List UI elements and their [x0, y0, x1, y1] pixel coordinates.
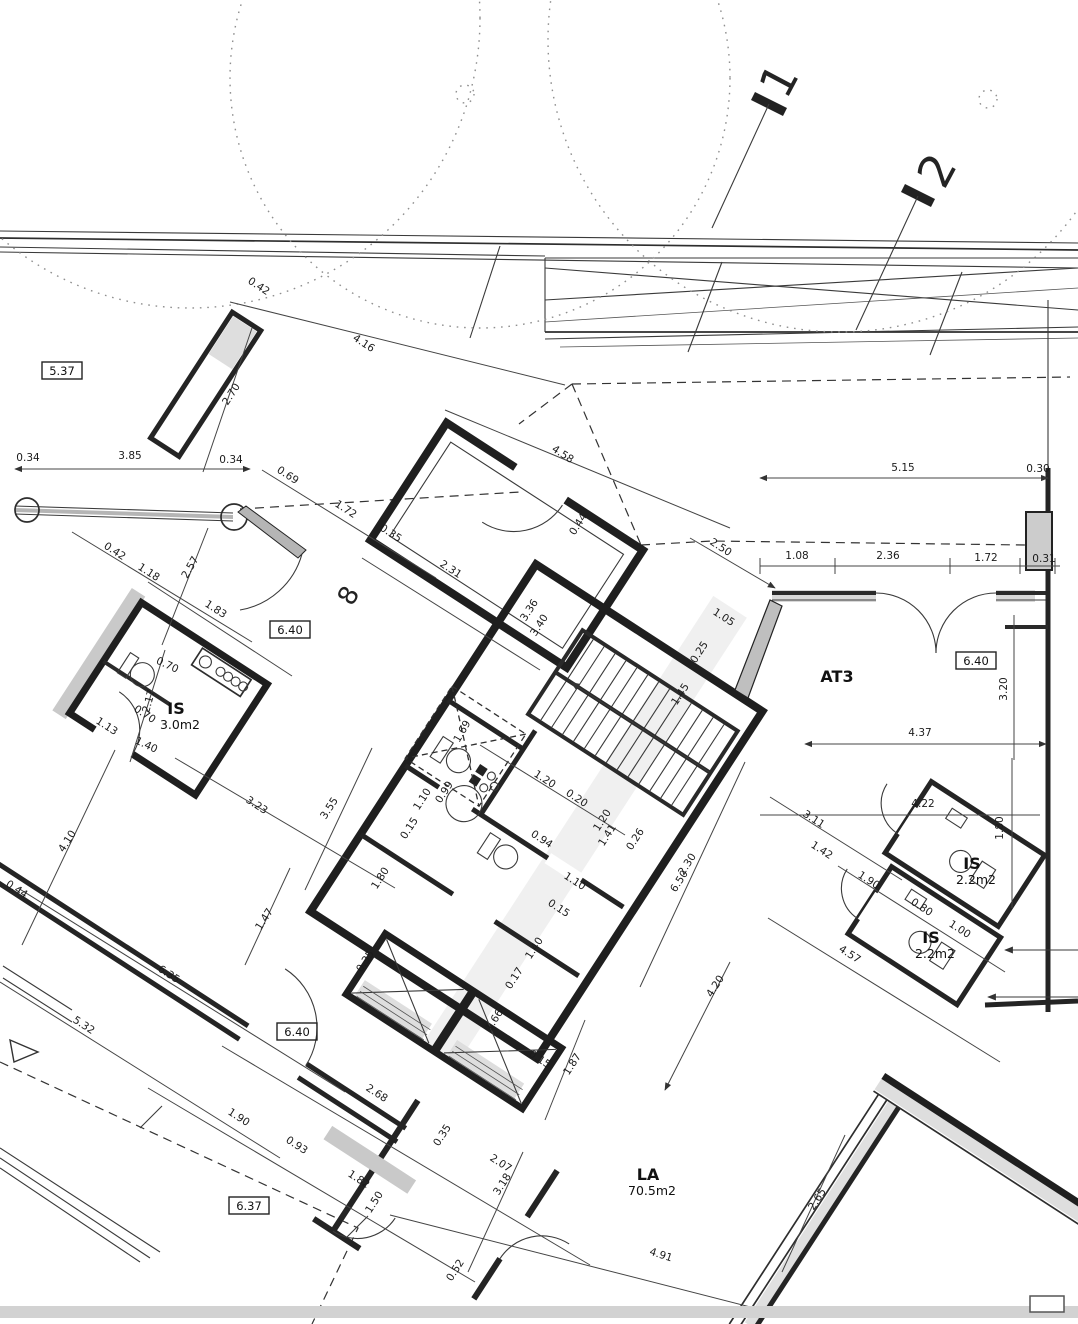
dimension-label: 1.90: [226, 1106, 252, 1129]
dimension-label: 0.42: [102, 540, 128, 563]
dimension-label: 1.50: [363, 1189, 386, 1215]
elevation-label: 5.37: [49, 364, 75, 378]
dimension-label: 4.16: [351, 332, 377, 355]
la-boundary-band: [724, 1076, 1078, 1324]
dimension-label: 2.36: [876, 550, 900, 562]
site-marks: [0, 966, 160, 1262]
fence-railing: [15, 498, 306, 610]
dimension-label: 2.31: [438, 558, 464, 581]
dimension-label: 0.30: [1026, 463, 1049, 475]
dimension-label: 1.80: [369, 865, 392, 891]
dimension-label: 3.55: [318, 795, 341, 821]
dimension-label: 0.15: [398, 815, 421, 841]
scan-page-edge: [0, 1296, 1078, 1318]
dimension-label: 0.35: [431, 1122, 454, 1148]
dimension-label: 4.37: [908, 727, 931, 739]
room-name: AT3: [820, 667, 853, 686]
dimension-label: 0.42: [246, 275, 272, 298]
dimension-label: 0.34: [16, 452, 40, 464]
dimension-label: 5.15: [891, 462, 914, 474]
dimension-label: 1.72: [333, 498, 359, 521]
dimension-label: 3.11: [801, 808, 827, 831]
room-area: 3.0m2: [160, 717, 200, 732]
dimension-label: 3.85: [118, 450, 141, 462]
dimension-label: 4.91: [648, 1246, 674, 1265]
dimension-label: 3.23: [244, 794, 270, 817]
dimension-label: 2.07: [488, 1152, 514, 1175]
dimension-label: 0.31: [1032, 553, 1055, 565]
room-area: 2.2m2: [915, 946, 955, 961]
room-name: LA: [637, 1165, 660, 1184]
toilet-fixture: [117, 653, 159, 692]
dimension-label: 1.20: [532, 768, 558, 791]
upper-wing: [370, 416, 647, 668]
site-walls: [735, 300, 1078, 1012]
dimension-label: 0.35: [378, 522, 404, 545]
dimension-label: 3.20: [998, 677, 1010, 700]
dimension-label: 1.87: [561, 1051, 584, 1077]
room-area: 70.5m2: [628, 1183, 676, 1198]
section-cut-marks: [712, 96, 933, 330]
floor-plan-svg: 0.424.162.700.343.850.340.691.724.585.15…: [0, 0, 1078, 1324]
dimension-label: 0.26: [624, 826, 647, 852]
dimension-label: 0.52: [444, 1257, 467, 1283]
dimension-label: 0.93: [284, 1134, 310, 1157]
dimension-label: 1.80: [994, 816, 1006, 839]
dimension-label: 1.47: [253, 906, 276, 932]
dimension-label: 1.42: [809, 839, 835, 862]
dimension-label: 4.22: [911, 798, 934, 810]
elevation-label: 6.40: [963, 654, 989, 668]
section-marker-number: 2: [906, 145, 967, 196]
dimension-label: 3.18: [491, 1171, 514, 1197]
dimension-label: 1.83: [203, 598, 229, 621]
dimension-label: 5.32: [71, 1014, 97, 1037]
dimension-label: 1.10: [411, 786, 434, 812]
dimension-lines: [0, 302, 1060, 1312]
dimension-label: 1.18: [136, 561, 162, 584]
dimension-label: 4.20: [704, 973, 727, 999]
room-name: IS: [922, 928, 939, 947]
dimension-label: 1.40: [133, 735, 159, 756]
elevation-label: 6.40: [284, 1025, 310, 1039]
dimension-labels: 0.424.162.700.343.850.340.691.724.585.15…: [4, 275, 1056, 1283]
elevation-label: 6.40: [277, 623, 303, 637]
dimension-label: 1.69: [451, 718, 473, 744]
dimension-label: 0.80: [909, 896, 935, 919]
room-name: IS: [167, 699, 184, 718]
dimension-label: 1.08: [785, 550, 808, 562]
sink-fixtures: [468, 764, 503, 798]
room-name: IS: [963, 854, 980, 873]
plan-glyph: 8: [332, 581, 366, 610]
elevation-label: 6.37: [236, 1199, 262, 1213]
dimension-label: 0.34: [219, 454, 243, 466]
dimension-label: 0.69: [275, 464, 301, 487]
room-area: 2.2m2: [956, 872, 996, 887]
planter: [151, 312, 261, 456]
dimension-label: 2.57: [179, 554, 201, 580]
dimension-label: 1.72: [974, 552, 997, 564]
floorplan-page: 0.424.162.700.343.850.340.691.724.585.15…: [0, 0, 1078, 1324]
road-band: [0, 231, 1078, 355]
left-is-room: [52, 588, 271, 801]
